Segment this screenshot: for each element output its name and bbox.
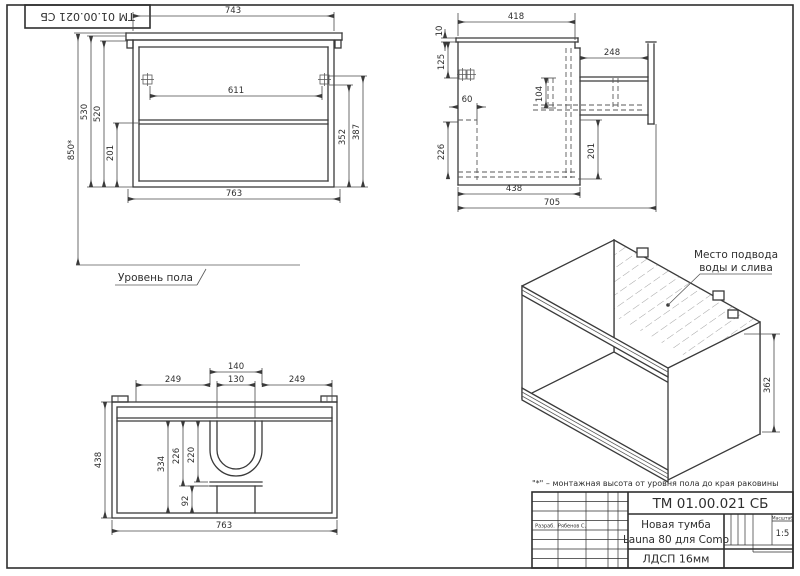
- dim-top-763: 763: [112, 520, 337, 535]
- dim-text-10: 10: [435, 26, 445, 37]
- iso-view: Место подвода воды и слива 362: [522, 240, 780, 482]
- dim-front-763: 763: [128, 189, 340, 203]
- material-text: ЛДСП 16мм: [643, 553, 710, 566]
- dim-front-743: 743: [133, 6, 334, 31]
- dim-text-438s: 438: [506, 184, 522, 194]
- dim-front-352: 352: [329, 85, 368, 187]
- iso-bracket-side: [728, 310, 738, 318]
- dim-text-248: 248: [604, 48, 620, 58]
- dim-text-530: 530: [80, 104, 90, 120]
- note-text-line1: Место подвода: [694, 249, 778, 261]
- dim-front-520: 520: [93, 41, 128, 187]
- dim-top-220: 220: [187, 421, 208, 482]
- front-view: 743 611 763 850* 530 520: [67, 6, 368, 285]
- sink-cutout: [210, 421, 262, 513]
- side-view-hidden-lines: [458, 48, 645, 180]
- dim-text-226s: 226: [437, 144, 447, 160]
- dim-text-220: 220: [187, 447, 197, 463]
- dim-text-60: 60: [462, 95, 473, 105]
- dim-text-850: 850*: [67, 140, 77, 160]
- title-block: Разраб. Рябенов С. ТМ 01.00.021 СБ Новая…: [532, 492, 793, 568]
- dim-side-10: 10: [435, 26, 456, 51]
- note-text-line2: воды и слива: [699, 262, 773, 274]
- dim-side-201: 201: [578, 120, 602, 179]
- side-view: 418 10 125 248 104: [435, 12, 656, 212]
- iso-bottom-rail: [522, 388, 668, 482]
- dim-text-226t: 226: [172, 448, 182, 464]
- dim-text-104: 104: [535, 86, 545, 102]
- scale-cell: Масштаб 1:5: [724, 514, 793, 552]
- dim-front-611: 611: [150, 86, 322, 100]
- dim-top-438: 438: [94, 402, 112, 518]
- drawing-sheet: ТМ 01.00.021 СБ: [0, 0, 800, 576]
- titleblock-designation: ТМ 01.00.021 СБ: [652, 496, 769, 512]
- signature-role: Разраб.: [535, 524, 555, 530]
- dim-top-249-left: 249: [136, 375, 210, 402]
- dim-text-201s: 201: [587, 143, 597, 159]
- top-view-object-lines: [112, 396, 337, 518]
- dim-text-418: 418: [508, 12, 524, 22]
- iso-bracket-right: [713, 291, 724, 300]
- dim-text-520: 520: [93, 106, 103, 122]
- dim-front-387: 387: [329, 76, 367, 187]
- dim-text-201: 201: [106, 145, 116, 161]
- dim-front-530: 530: [80, 36, 133, 187]
- dim-text-387: 387: [352, 124, 362, 140]
- dim-text-438t: 438: [94, 452, 104, 468]
- product-name-line1: Новая тумба: [641, 519, 711, 531]
- top-view: 140 130 249 249 438 334: [94, 362, 337, 535]
- dim-top-92: 92: [181, 486, 215, 513]
- drawing-canvas: ТМ 01.00.021 СБ: [0, 0, 800, 576]
- dim-text-763t: 763: [216, 521, 232, 531]
- hinge-mark-right: [318, 73, 331, 86]
- dim-text-140: 140: [228, 362, 244, 372]
- dim-side-438: 438: [458, 184, 580, 198]
- dim-text-130: 130: [228, 375, 244, 385]
- dim-side-705: 705: [458, 124, 656, 212]
- product-name-line2: Launa 80 для Como: [623, 534, 729, 546]
- designation-rotated-text: ТМ 01.00.021 СБ: [40, 10, 135, 23]
- dim-side-125: 125: [437, 42, 458, 78]
- signature-grid: Разраб. Рябенов С.: [532, 492, 628, 568]
- iso-bracket-left: [637, 248, 648, 257]
- scale-label: Масштаб: [772, 516, 794, 522]
- dim-side-418: 418: [458, 12, 575, 40]
- dim-text-763: 763: [226, 189, 242, 199]
- floor-level-label: Уровень пола: [118, 272, 193, 284]
- floor-level: Уровень пола: [76, 265, 300, 285]
- dim-text-334: 334: [157, 456, 167, 472]
- dim-side-60: 60: [449, 95, 486, 120]
- dim-text-352: 352: [338, 129, 348, 145]
- dim-text-92: 92: [181, 496, 191, 507]
- dim-side-226: 226: [437, 122, 458, 179]
- dim-text-743: 743: [225, 6, 241, 16]
- scale-value: 1:5: [776, 529, 790, 539]
- side-view-object-lines: [456, 38, 656, 185]
- dim-text-249l: 249: [165, 375, 181, 385]
- hinge-mark-side: [457, 68, 476, 81]
- designation-box-rotated: ТМ 01.00.021 СБ: [25, 5, 150, 28]
- dim-text-705: 705: [544, 198, 560, 208]
- dim-text-611: 611: [228, 86, 244, 96]
- dim-text-362: 362: [763, 377, 773, 393]
- dim-text-249r: 249: [289, 375, 305, 385]
- dim-top-334: 334: [157, 421, 168, 513]
- signature-name: Рябенов С.: [558, 524, 587, 530]
- dim-text-125: 125: [437, 54, 447, 70]
- dim-top-130: 130: [217, 375, 255, 418]
- hinge-mark-left: [141, 73, 154, 86]
- footnote-text: "*" – монтажная высота от уровня пола до…: [532, 479, 778, 488]
- dim-side-248: 248: [580, 44, 648, 77]
- front-view-object-lines: [126, 33, 342, 187]
